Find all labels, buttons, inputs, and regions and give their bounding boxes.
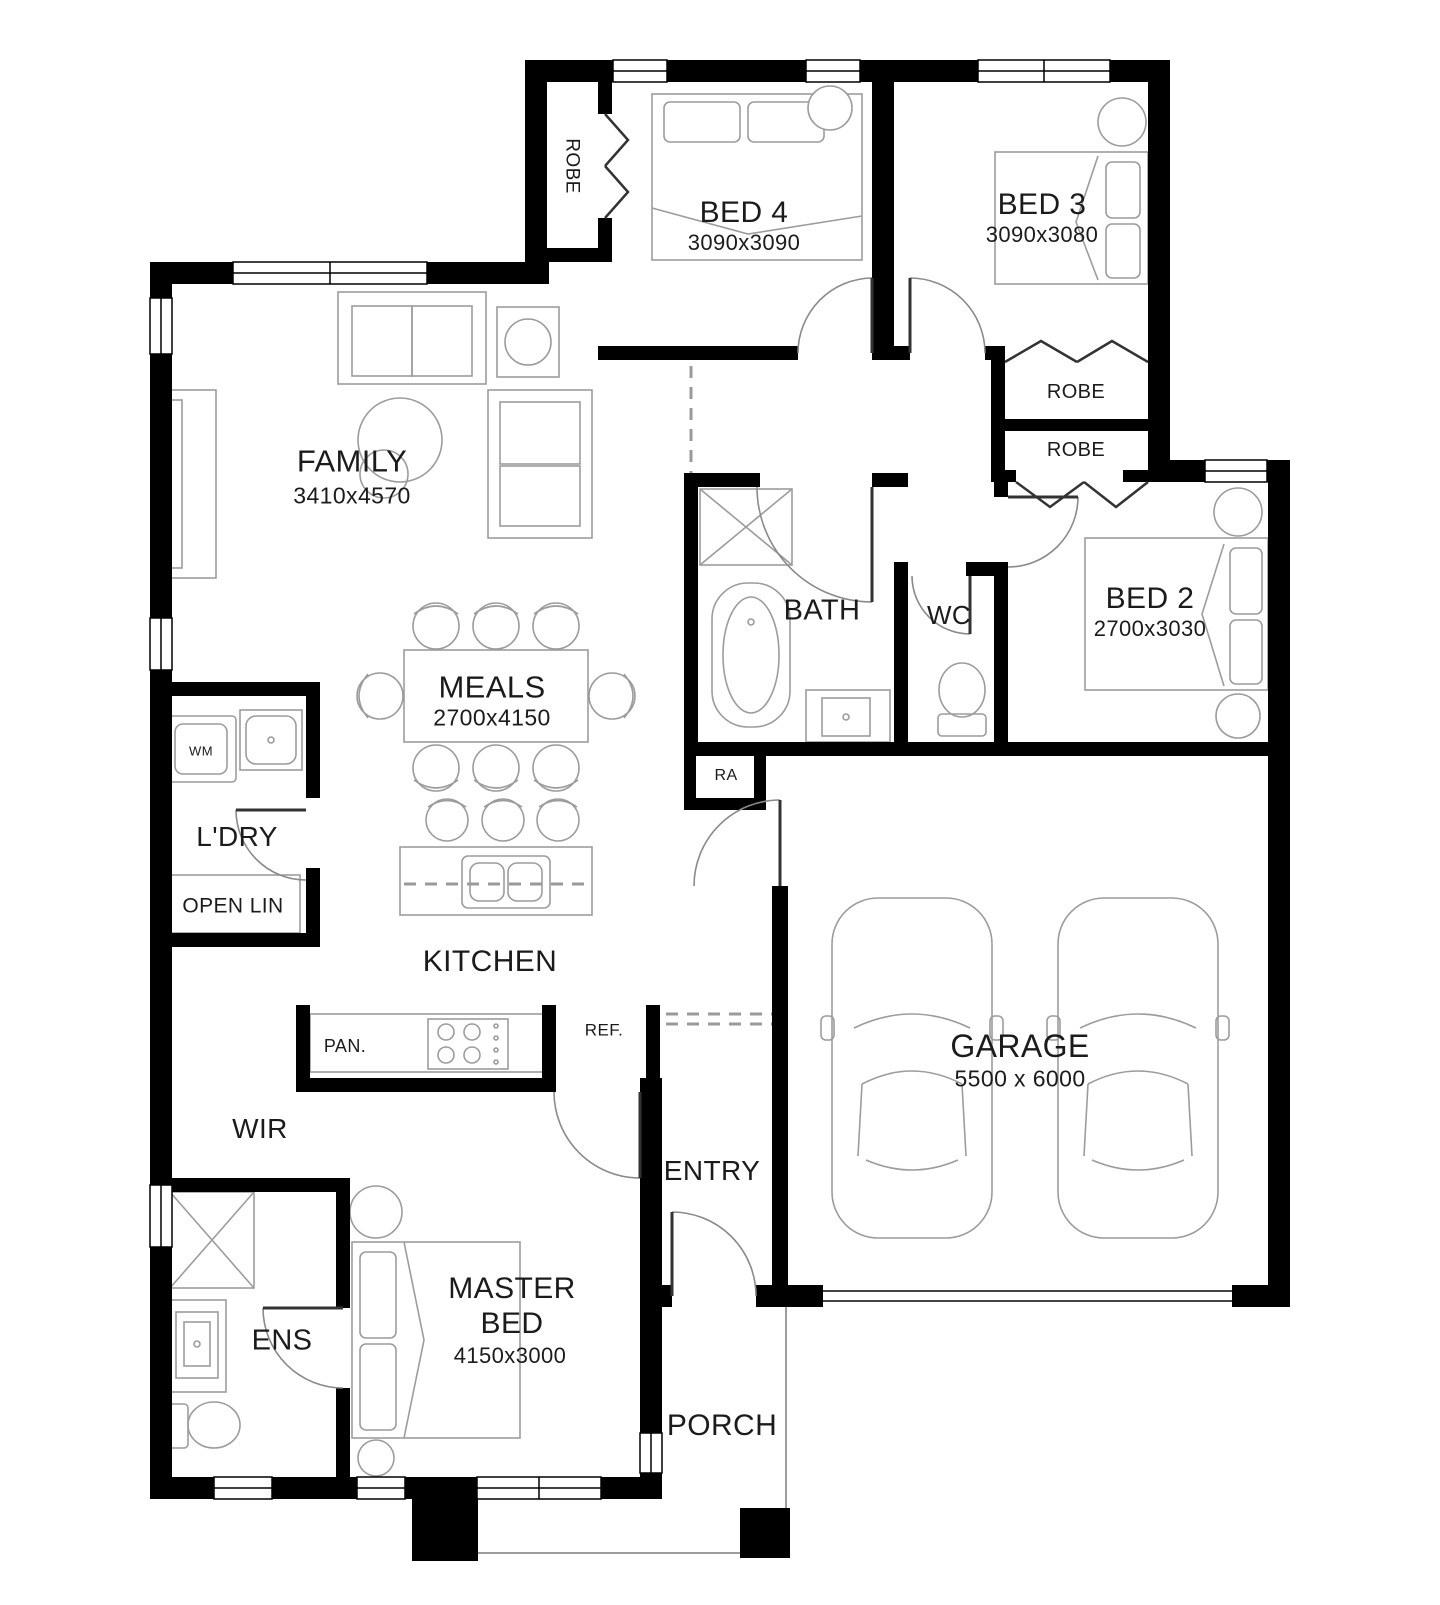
label-master-dims: 4150x3000 bbox=[454, 1345, 566, 1367]
lounge-couch-icon bbox=[488, 390, 592, 538]
label-bath: BATH bbox=[784, 597, 861, 626]
label-wc: WC bbox=[927, 602, 971, 628]
label-master-name-1: MASTER bbox=[448, 1274, 575, 1304]
label-family-name: FAMILY bbox=[297, 446, 407, 477]
label-family-dims: 3410x4570 bbox=[293, 485, 410, 508]
label-entry: ENTRY bbox=[664, 1157, 760, 1185]
label-robe-bed2: ROBE bbox=[1047, 440, 1105, 460]
label-porch: PORCH bbox=[667, 1411, 777, 1441]
label-bed4-dims: 3090x3090 bbox=[688, 232, 800, 254]
ens-vanity-icon bbox=[168, 1300, 226, 1392]
label-kitchen: KITCHEN bbox=[423, 947, 557, 977]
label-ref: REF. bbox=[585, 1022, 623, 1039]
porch-column-icon bbox=[740, 1508, 790, 1558]
label-open-lin: OPEN LIN bbox=[182, 896, 283, 917]
pier-icon bbox=[412, 1477, 478, 1561]
bathtub-icon bbox=[712, 583, 790, 727]
label-garage-name: GARAGE bbox=[950, 1030, 1089, 1062]
label-bed2-name: BED 2 bbox=[1106, 584, 1195, 614]
label-ra: RA bbox=[714, 768, 737, 784]
label-bed4-name: BED 4 bbox=[700, 198, 789, 228]
garage-door-line bbox=[823, 1291, 1232, 1301]
label-bed3-dims: 3090x3080 bbox=[986, 224, 1098, 246]
label-wm: WM bbox=[189, 745, 213, 758]
label-ens: ENS bbox=[252, 1327, 313, 1356]
side-table-lamp-icon bbox=[497, 307, 559, 377]
label-wir: WIR bbox=[232, 1115, 288, 1143]
label-meals-name: MEALS bbox=[438, 672, 545, 703]
label-meals-dims: 2700x4150 bbox=[433, 707, 550, 730]
walls bbox=[150, 60, 1290, 1561]
ens-toilet-icon bbox=[168, 1402, 240, 1448]
island-bench-icon bbox=[400, 847, 592, 915]
label-robe-bed3: ROBE bbox=[1047, 382, 1105, 402]
label-bed3-name: BED 3 bbox=[998, 190, 1087, 220]
ens-shower-icon bbox=[170, 1192, 254, 1288]
wc-toilet-icon bbox=[938, 663, 986, 736]
label-robe-bed4: ROBE bbox=[563, 138, 582, 193]
label-garage-dims: 5500 x 6000 bbox=[954, 1068, 1085, 1091]
bath-vanity-icon bbox=[806, 690, 890, 742]
sofa-icon bbox=[338, 292, 486, 384]
label-ldry: L'DRY bbox=[196, 823, 278, 851]
label-pan: PAN. bbox=[324, 1037, 366, 1055]
label-master-name-2: BED bbox=[481, 1309, 544, 1339]
kitchen-stools-icon bbox=[426, 799, 579, 841]
label-bed2-dims: 2700x3030 bbox=[1094, 618, 1206, 640]
laundry-trough-icon bbox=[240, 710, 302, 770]
floor-plan: ROBE BED 4 3090x3090 BED 3 3090x3080 FAM… bbox=[0, 0, 1440, 1605]
